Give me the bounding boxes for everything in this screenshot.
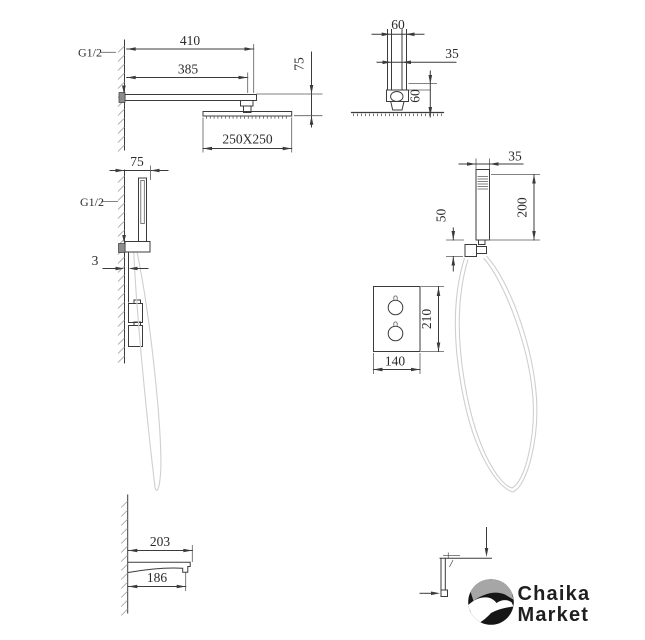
dim-drop-60-side: 60 [408,71,438,117]
dim-label-50: 50 [434,209,449,223]
view-hand-shower-front: 35 200 50 210 [374,149,541,493]
fitting-nut [391,102,404,111]
view-overhead-shower-side: G1/2 410 385 75 [78,33,323,153]
dim-label-140: 140 [385,354,406,369]
dim-label-250x250: 250X250 [222,132,272,147]
dim-label-75-bracket: 75 [130,154,144,169]
dim-pipe-width-35: 35 [377,46,459,64]
dim-label-g-thread-mid: G1/2 [80,195,104,209]
dim-label-210: 210 [419,309,434,330]
technical-drawing-canvas: G1/2 410 385 75 [0,0,645,640]
dim-head-size-250x250: 250X250 [203,118,292,153]
wall-bracket-square [465,245,477,257]
dim-flange-width-60: 60 [372,17,424,36]
view-overhead-shower-front: 60 35 60 [352,17,460,117]
dim-label-35-front: 35 [445,46,459,61]
handshower-wand-front [476,170,490,241]
holder-wall-fitting [119,244,126,253]
logo-wordmark-line1: Chaika [518,583,591,605]
flow-arrow-down-icon [485,548,489,557]
view-spout-side: 203 186 [121,495,192,616]
dim-label-75-drop: 75 [292,57,307,71]
flow-arrow-right-icon [431,592,440,596]
dim-spout-total-203: 203 [128,534,192,562]
dim-label-200: 200 [515,197,530,218]
mixer-knob-1 [388,300,403,315]
dim-wand-length-200: 200 [488,175,540,241]
dim-plate-height-210: 210 [419,287,444,352]
dim-wand-width-35: 35 [459,149,523,170]
handshower-wand-side [139,178,147,242]
hose-loop-outer [455,256,537,492]
wand-holder-bar [125,242,150,253]
head-connector-upper [241,101,254,107]
wall-hatch-bottom [121,501,128,616]
dim-label-3: 3 [92,253,99,268]
arm-wall-fitting [119,93,125,103]
valve-knob-side-1 [129,304,143,323]
dim-label-35-wand: 35 [508,149,522,164]
mixer-knob-2 [388,326,403,341]
head-nozzle-ticks-front [354,114,442,117]
inlet-arrow-icon [122,86,126,94]
wand-spray-face-stripes [478,177,489,190]
wand-neck [479,240,486,245]
dim-label-385: 385 [178,62,199,77]
dim-label-60-top: 60 [391,17,405,32]
dim-bracket-span-75: 75 [110,154,168,180]
dim-spout-body-186: 186 [128,570,185,591]
ball-joint [391,92,403,102]
wall-bracket-arm [477,247,487,254]
wand-inner-detail [141,181,145,224]
supply-pipe-lines [388,30,407,91]
hose-hairpin [134,253,161,491]
shower-arm [125,95,257,101]
dim-label-203: 203 [150,534,171,549]
hose-loop-inner [459,258,533,488]
view-hand-shower-side: G1/2 75 3 [80,154,168,490]
dim-arm-reach-385: 385 [127,62,248,94]
spout-front-foot [441,590,448,597]
dim-label-186: 186 [147,570,168,585]
chaika-market-logo: Chaika Market [466,578,591,628]
dim-outlet-drop-50: 50 [434,209,465,272]
dim-label-60-side: 60 [408,89,423,103]
spout-front-body [441,558,445,596]
dim-label-g-thread-top: G1/2 [78,46,102,60]
dim-plate-width-140: 140 [374,353,421,374]
dim-label-410: 410 [180,33,201,48]
knob-index-mark-2 [394,322,397,326]
head-nozzle-ticks [207,116,287,119]
logo-wordmark-line2: Market [518,604,590,626]
knob-index-mark-1 [394,296,397,300]
